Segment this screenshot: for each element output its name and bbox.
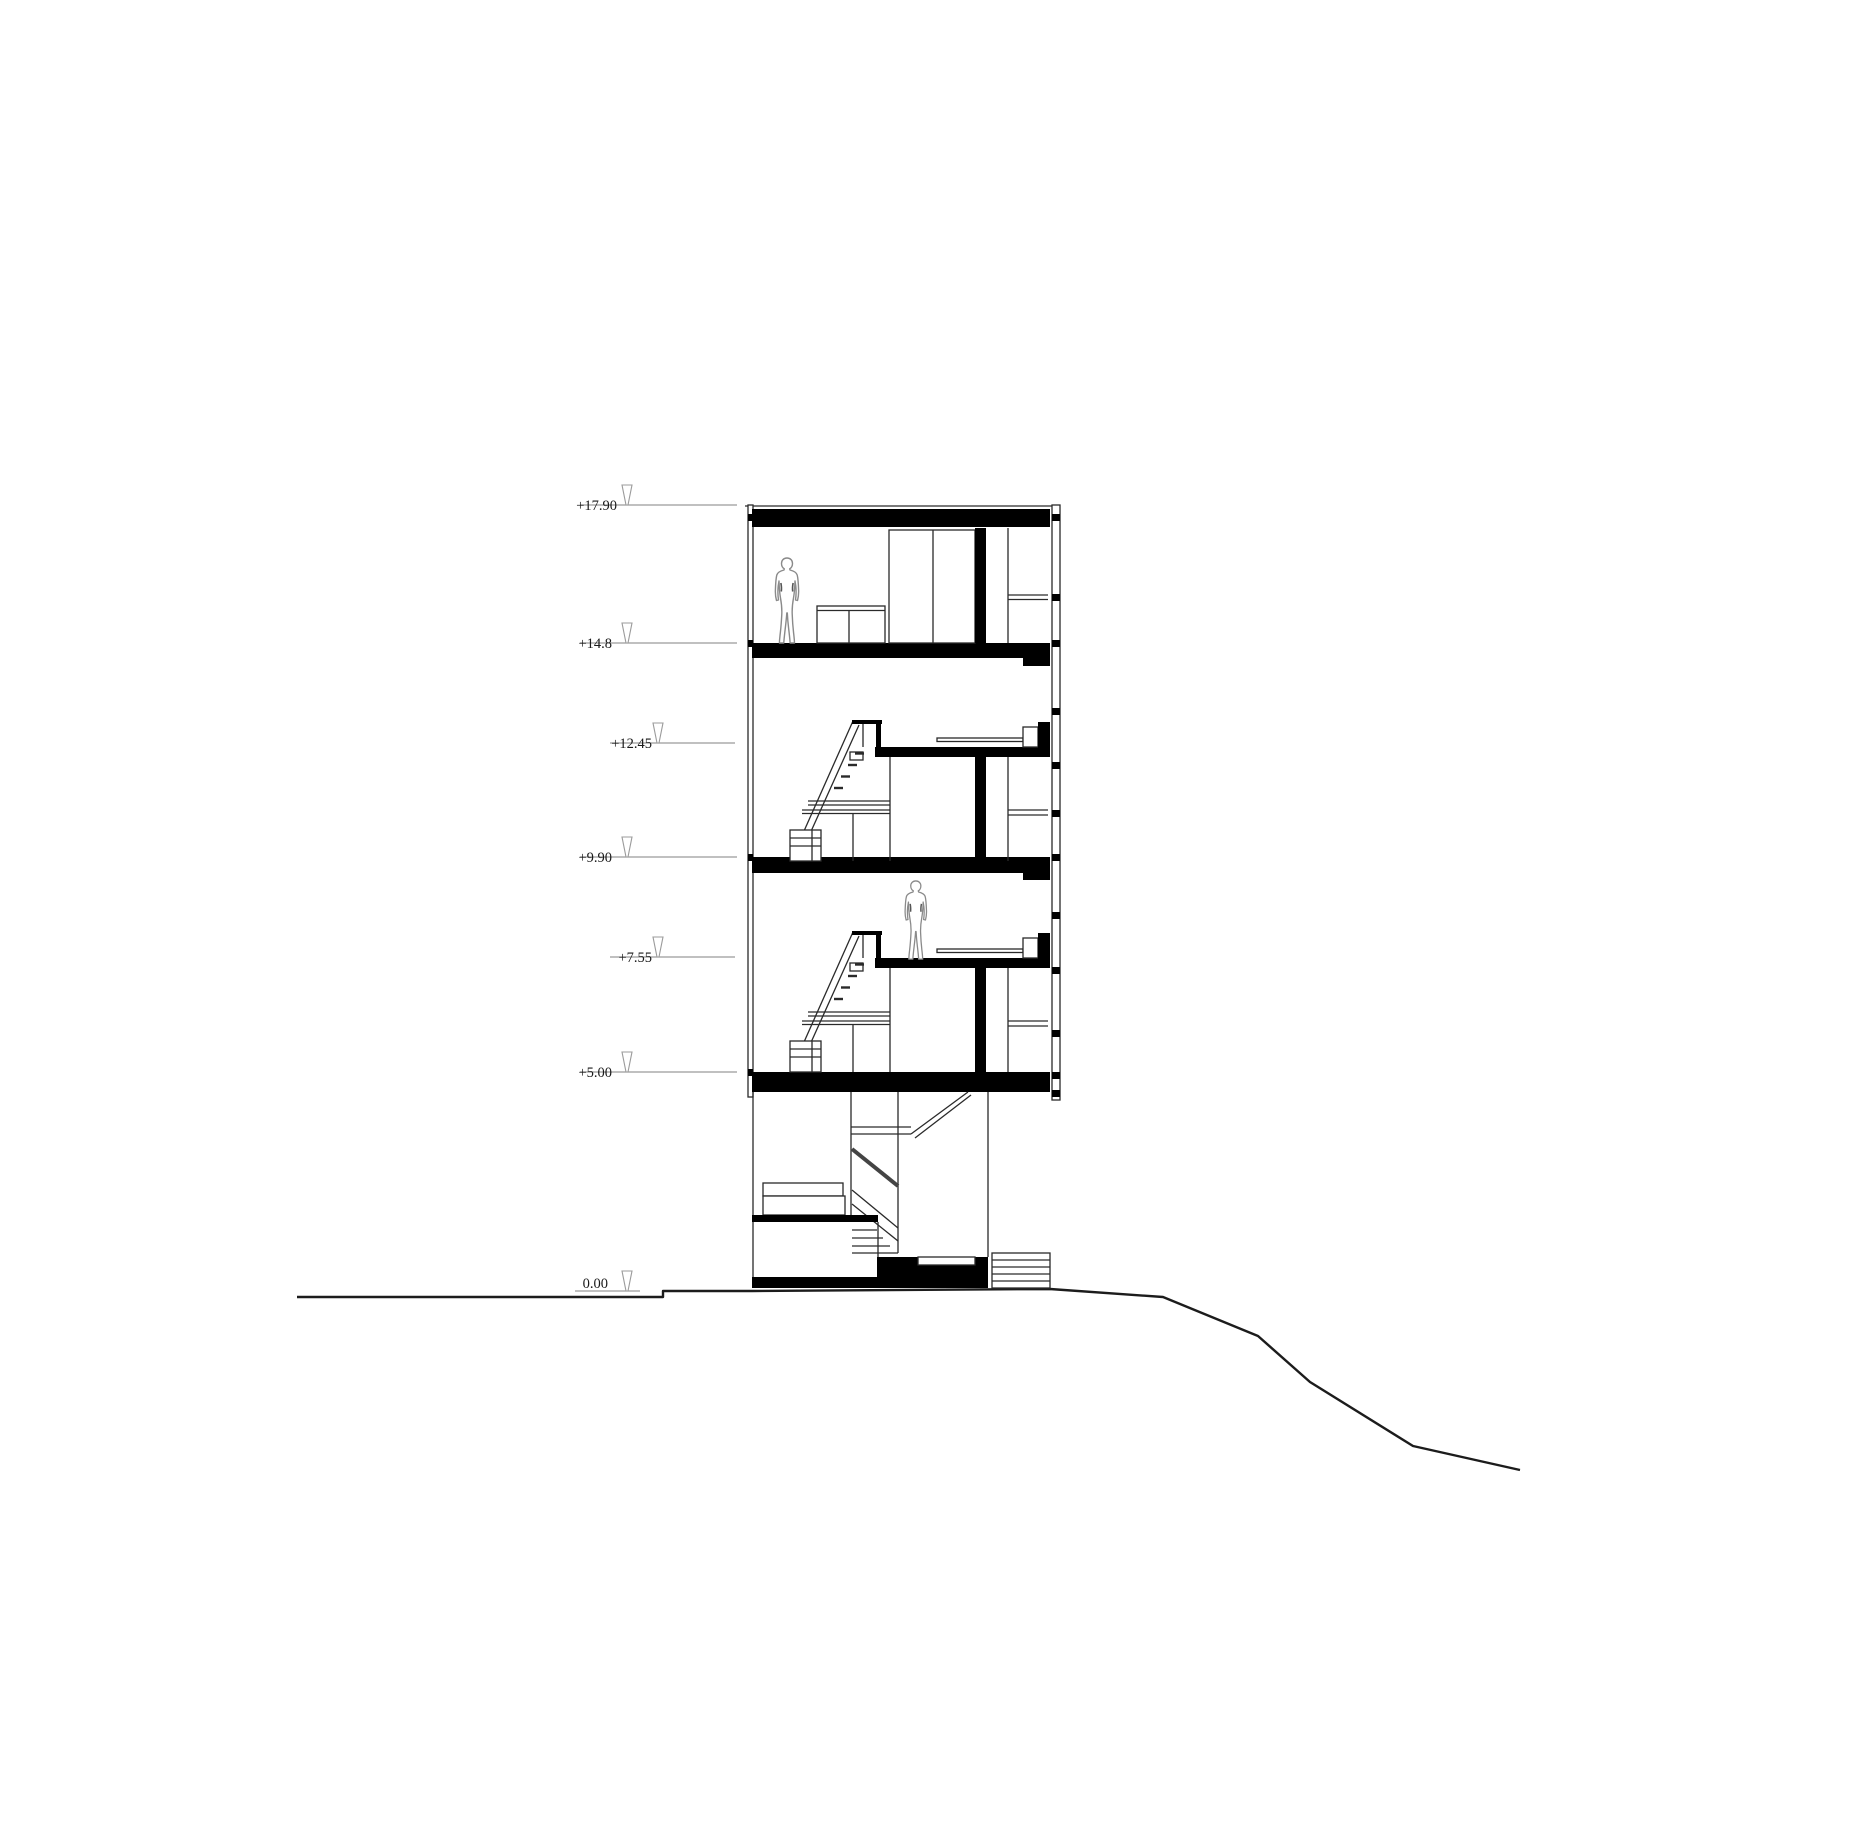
ground-floor: [752, 1092, 1050, 1288]
level-marker-icon: [653, 937, 663, 957]
wardrobe: [889, 530, 975, 643]
low-cabinet: [817, 606, 885, 643]
top-floor: [775, 528, 1048, 643]
building-section: [745, 505, 1060, 1288]
level-marker-icon: [653, 723, 663, 743]
left-glazed-wall: [748, 505, 753, 1097]
ground-line: [297, 1289, 1520, 1470]
stair-railing-line: [915, 1095, 971, 1138]
level-marker-icon: [622, 837, 632, 857]
level-marker-icon: [622, 623, 632, 643]
roof-slab: [752, 509, 1050, 527]
elevation-label: +12.45: [611, 736, 652, 752]
floor-slab-5-00: [752, 1072, 1050, 1092]
elevation-marker: +5.00: [578, 1052, 737, 1081]
level-marker-icon: [622, 1052, 632, 1072]
section-drawing-canvas: +17.90 +14.8 +12.45 +9.90 +7.55 +5.00: [0, 0, 1862, 1848]
elevation-marker: 0.00: [575, 1271, 640, 1292]
elevation-marker: +17.90: [576, 485, 737, 514]
elevation-label: +5.00: [578, 1065, 612, 1081]
elevation-label: +17.90: [576, 498, 617, 514]
intermediate-slab: [752, 1215, 878, 1222]
level-marker-icon: [622, 485, 632, 505]
floor-slab-14-8: [752, 643, 1050, 658]
slab-edge-step: [1023, 658, 1050, 666]
bed-headboard: [763, 1183, 843, 1196]
elevation-marker: +12.45: [610, 723, 735, 752]
elevation-markers: +17.90 +14.8 +12.45 +9.90 +7.55 +5.00: [575, 485, 737, 1292]
standing-person-figure: [775, 558, 798, 643]
architectural-section-drawing: +17.90 +14.8 +12.45 +9.90 +7.55 +5.00: [0, 0, 1862, 1848]
lower-duplex-level: [790, 881, 1050, 1072]
stair-railing-line: [911, 1092, 968, 1134]
standing-person-figure: [905, 881, 926, 959]
elevation-label: +9.90: [578, 850, 612, 866]
elevation-label: +14.8: [578, 636, 612, 652]
plinth: [752, 1277, 878, 1288]
elevation-label: +7.55: [618, 950, 652, 966]
slab-edge-step: [1023, 873, 1050, 880]
interior-wall: [975, 528, 986, 643]
foundation-recess: [918, 1257, 975, 1265]
elevation-marker: +14.8: [578, 623, 737, 652]
elevation-label: 0.00: [583, 1276, 608, 1292]
exterior-steps: [992, 1253, 1050, 1288]
upper-duplex-level: [790, 720, 1050, 861]
level-marker-icon: [622, 1271, 632, 1291]
bed: [763, 1196, 845, 1215]
ground-profile: [297, 1289, 1520, 1470]
stair-flight: [852, 1149, 898, 1186]
elevation-marker: +7.55: [610, 937, 735, 966]
elevation-marker: +9.90: [578, 837, 737, 866]
